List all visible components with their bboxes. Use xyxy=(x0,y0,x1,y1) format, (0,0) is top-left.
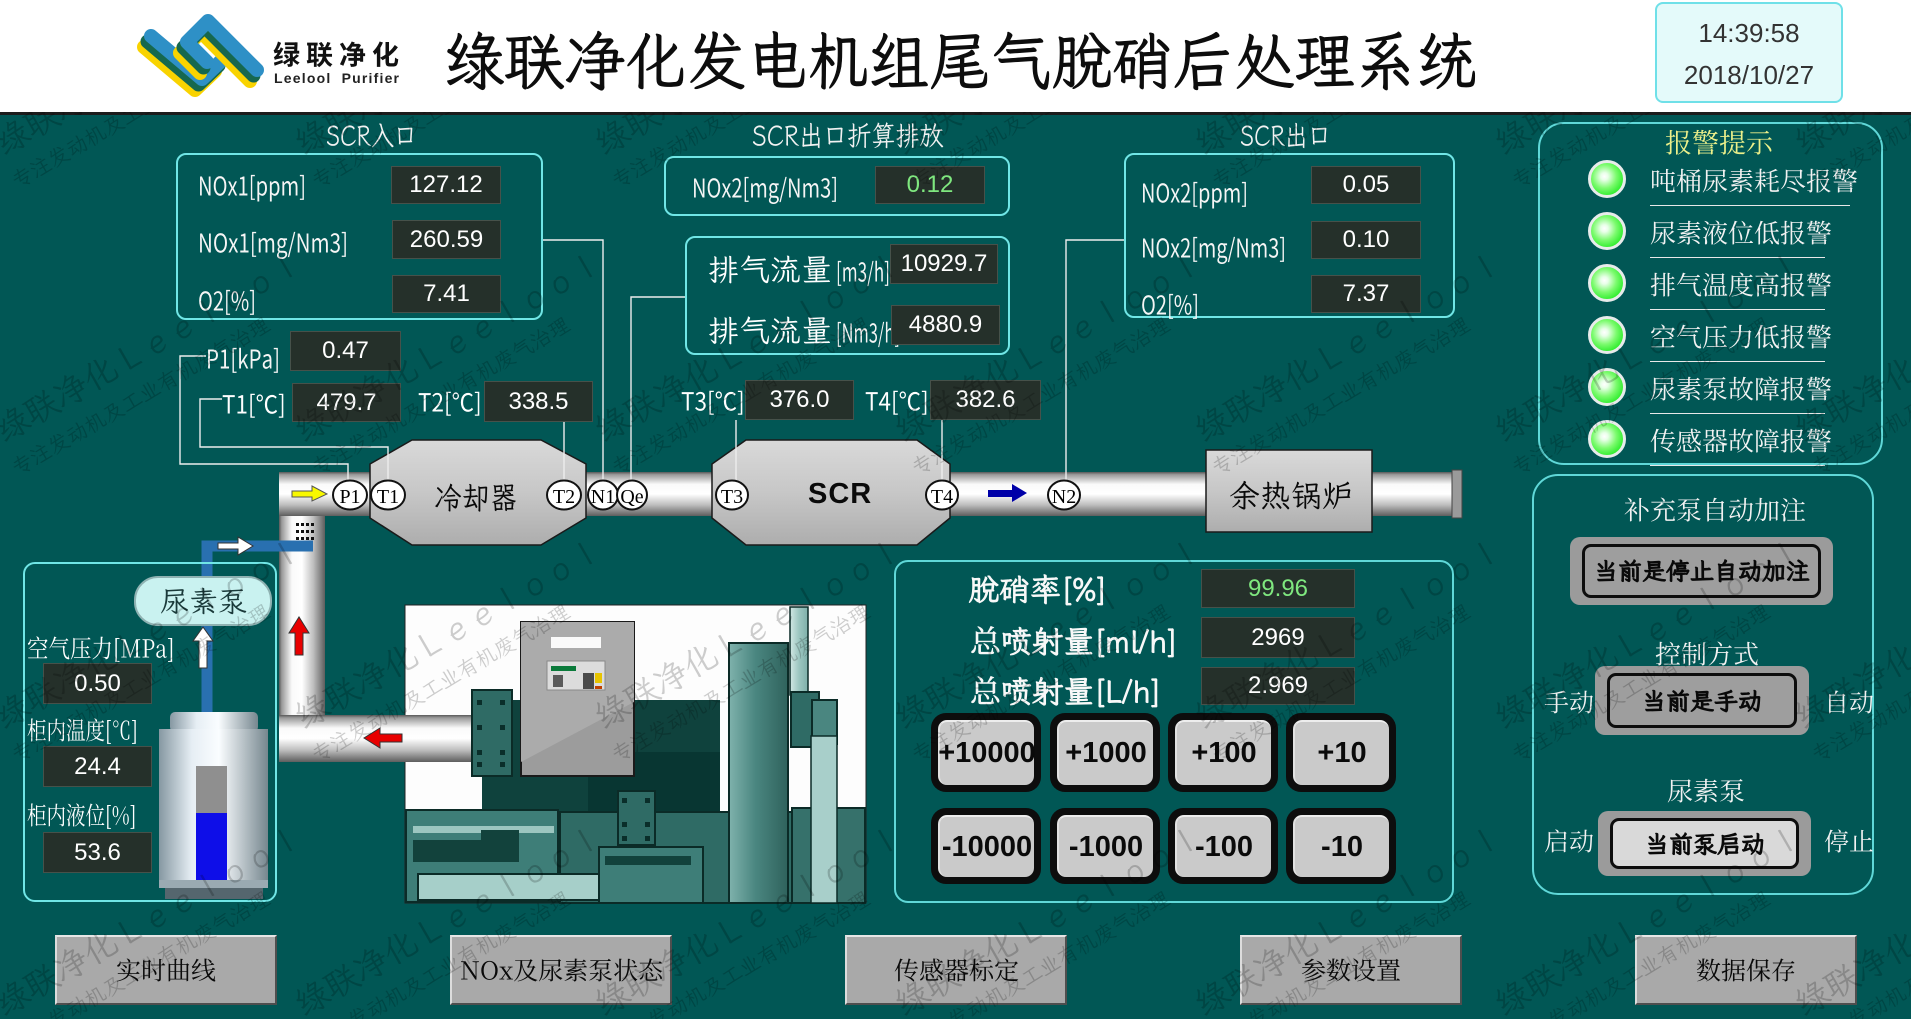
svg-text:Qe: Qe xyxy=(620,486,643,508)
svg-text:N1: N1 xyxy=(591,486,615,508)
svg-text:T4: T4 xyxy=(931,486,953,508)
svg-text:N2: N2 xyxy=(1052,486,1076,508)
svg-text:T2: T2 xyxy=(553,486,575,508)
svg-text:P1: P1 xyxy=(339,486,360,508)
svg-text:T3: T3 xyxy=(721,486,743,508)
svg-text:T1: T1 xyxy=(377,486,399,508)
